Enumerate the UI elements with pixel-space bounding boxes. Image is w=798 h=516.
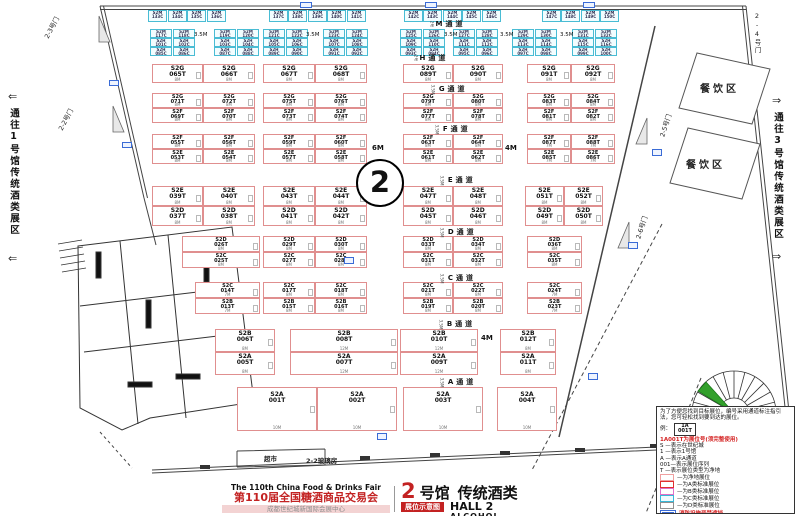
booth: S2E043T8M <box>263 186 315 206</box>
hall-type-en: ALCOHOL <box>450 512 500 516</box>
booth: S2C035T8M <box>527 252 582 268</box>
small-booth: S2M125C <box>400 29 422 38</box>
booth: S2B013T7M <box>195 298 260 314</box>
aisle-label: 3.5MD通道 <box>437 227 477 237</box>
small-booth: S2M150C <box>600 10 619 22</box>
small-booth: S2M130C <box>535 29 557 38</box>
booth-number: 009T <box>401 360 477 366</box>
fire-hydrant-icon <box>425 2 437 8</box>
small-booth: S2H100C <box>595 47 617 56</box>
booth-number: 147C <box>543 15 560 19</box>
booth-width-label: 8M <box>264 78 314 82</box>
booth: S2C032T8M <box>453 252 503 268</box>
small-booth: S2M147C <box>542 10 561 22</box>
booth-width-label: 10M <box>404 426 482 430</box>
booth-width-label: 10M <box>238 426 316 430</box>
booth: S2C028T8M <box>315 252 367 268</box>
legend-intro: 为了方便您找到目标展位，编号采用通道标注指引法，您可轻松找到要到达的展位。 <box>660 409 791 422</box>
booth-width-label: 8M <box>404 103 452 107</box>
booth: S2B012T8M <box>500 329 556 352</box>
booth: S2B023T7M <box>527 298 582 314</box>
small-booth: S2H107C <box>323 38 345 47</box>
fire-hydrant-icon <box>652 149 662 156</box>
booth-width-label: 7M <box>572 159 614 163</box>
booth-width-label: 8M <box>153 221 202 225</box>
booth: S2D041T8M <box>263 206 315 226</box>
booth: S2C027T8M <box>263 252 315 268</box>
booth: S2E052T8M <box>564 186 603 206</box>
small-booth: S2M128C <box>476 29 498 38</box>
booth: S2F082T8M <box>571 108 615 123</box>
booth-width-label: 8M <box>316 201 366 205</box>
banner-divider <box>394 486 395 512</box>
booth-number: 012T <box>501 337 555 343</box>
fire-hydrant-icon <box>344 257 354 264</box>
booth-width-label: 8M <box>264 221 314 225</box>
aisle-label: 2号H通道 <box>412 53 448 63</box>
booth: S2E058T8M <box>315 149 367 164</box>
booth: S2E053T8M <box>152 149 203 164</box>
booth: S2A009T12M <box>400 352 478 375</box>
booth-number: 089C <box>264 52 284 56</box>
booth-number: 138C <box>289 15 306 19</box>
fire-hydrant-icon <box>583 2 595 8</box>
booth: S2D038T8M <box>203 206 255 226</box>
booth-number: 008T <box>291 337 397 343</box>
small-booth: S2M138C <box>288 10 307 22</box>
booth-width-label: 8M <box>316 103 366 107</box>
booth: S2F070T8M <box>203 108 255 123</box>
booth: S2B015T8M <box>263 298 315 314</box>
swatch-label: —为A类标准展位 <box>677 482 719 488</box>
booth: S2A011T8M <box>500 352 556 375</box>
hall-title-block: 2 号馆 传统酒类 展位示意图 HALL 2 ALCOHOL <box>401 481 518 516</box>
legend-example-label: 例： <box>660 426 671 432</box>
booth: S2F069T8M <box>152 108 203 123</box>
booth: S2G072T8M <box>203 93 255 108</box>
booth-width-label: 8M <box>316 309 366 313</box>
small-booth: S2H108C <box>346 38 368 47</box>
left-corridor-arrow-icon: ⇐ <box>8 254 17 264</box>
booth-width-label: 12M <box>401 347 477 351</box>
hall-number-badge: 2 <box>356 159 404 207</box>
small-booth: S2H092C <box>346 47 368 56</box>
small-booth: S2H089C <box>263 47 285 56</box>
booth-number: 136C <box>208 15 225 19</box>
booth: S2C025T8M <box>182 252 260 268</box>
small-booth: S2M132C <box>595 29 617 38</box>
booth: S2B016T8M <box>315 298 367 314</box>
fair-title-cn: 第110届全国糖酒商品交易会 <box>222 492 390 504</box>
area-label: 2-2玻璃房 <box>306 455 337 465</box>
floor-plan-page: S2G065T8MS2G066T8MS2G067T8MS2G068T8MS2G0… <box>0 0 798 516</box>
booth-width-label: 8M <box>204 144 254 148</box>
booth-width-label: 7M <box>528 159 570 163</box>
booth-width-label: 8M <box>316 118 366 122</box>
booth-width-label: 8M <box>404 201 452 205</box>
booth-number: 141C <box>348 15 365 19</box>
small-booth: S2M131C <box>572 29 594 38</box>
booth-width-label: 7M <box>528 144 570 148</box>
booth-width-label: 8M <box>454 309 502 313</box>
aisle-name: B通道 <box>447 320 475 328</box>
booth: S2D050T8M <box>564 206 603 226</box>
booth-width-label: 8M <box>454 247 502 251</box>
legend-swatch-row: —为C类标准展位 <box>660 495 791 502</box>
small-booth: S2M122C <box>286 29 308 38</box>
small-booth: S2H085C <box>150 47 172 56</box>
gap-width-label: 3.5M <box>560 32 574 38</box>
hall-number: 2 <box>401 481 416 501</box>
plan-tag: 展位示意图 <box>401 502 444 512</box>
booth: S2D026T8M <box>182 236 260 252</box>
booth: S2G090T8M <box>453 64 503 83</box>
booth-width-label: 8M <box>264 103 314 107</box>
booth: S2D042T8M <box>315 206 367 226</box>
booth-type-swatch <box>660 502 674 509</box>
booth: S2A007T12M <box>290 352 398 375</box>
booth-width-label: 8M <box>454 144 502 148</box>
booth-width-label: 8M <box>404 263 452 267</box>
booth: S2G079T8M <box>403 93 453 108</box>
booth-width-label: 8M <box>526 221 563 225</box>
door-label: 2-2号门 <box>55 106 75 132</box>
booth: S2D036T8M <box>527 236 582 252</box>
aisle-width-label: 2号 <box>412 55 418 62</box>
booth-width-label: 8M <box>204 221 254 225</box>
booth-number: 098C <box>536 52 556 56</box>
booth-number: 003T <box>404 398 482 404</box>
booth: S2G089T8M <box>403 64 453 83</box>
legend-swatch-row: —为B类标准展位 <box>660 488 791 495</box>
booth-width-label: 8M <box>316 263 366 267</box>
booth-width-label: 8M <box>565 221 602 225</box>
booth: S2F074T8M <box>315 108 367 123</box>
booth-number: 002T <box>318 398 396 404</box>
aisle-name: C通道 <box>448 274 476 282</box>
booth-width-label: 8M <box>565 201 602 205</box>
booth: S2D029T8M <box>263 236 315 252</box>
small-booth: S2M126C <box>423 29 445 38</box>
booth-width-label: 8M <box>526 201 563 205</box>
small-booth: S2H098C <box>535 47 557 56</box>
booth: S2E062T8M <box>453 149 503 164</box>
booth: S2F059T8M <box>263 134 315 149</box>
booth-type-swatch <box>660 474 674 481</box>
booth: S2D033T8M <box>403 236 453 252</box>
booth-width-label: 8M <box>316 144 366 148</box>
booth-width-label: 8M <box>404 309 452 313</box>
booth-width-label: 8M <box>204 103 254 107</box>
booth: S2G076T8M <box>315 93 367 108</box>
booth-width-label: 12M <box>291 370 397 374</box>
small-booth: S2M119C <box>214 29 236 38</box>
booth: S2F056T8M <box>203 134 255 149</box>
booth-number: 085C <box>151 52 171 56</box>
aisle-label: 2号M通道 <box>428 19 466 29</box>
small-booth: S2M129C <box>512 29 534 38</box>
booth-number: 095C <box>454 52 474 56</box>
small-booth: S2H114C <box>535 38 557 47</box>
booth: S2F060T8M <box>315 134 367 149</box>
booth-number: 087C <box>215 52 235 56</box>
booth: S2F078T8M <box>453 108 503 123</box>
booth-width-label: 8M <box>404 247 452 251</box>
small-booth: S2H115C <box>572 38 594 47</box>
booth-number: 004T <box>498 398 556 404</box>
booth-width-label: 8M <box>153 144 202 148</box>
booth-width-label: 8M <box>216 347 274 351</box>
booth: S2G065T8M <box>152 64 203 83</box>
booth-width-label: 8M <box>204 159 254 163</box>
legend-box: 为了方便您找到目标展位，编号采用通道标注指引法，您可轻松找到要到达的展位。 例：… <box>656 406 795 514</box>
small-booth: S2M142C <box>404 10 423 22</box>
aisle-label: 3.5MG通道 <box>428 84 468 94</box>
booth-width-label: 8M <box>153 78 202 82</box>
booth-width-label: 8M <box>404 144 452 148</box>
booth: S2C021T8M <box>403 282 453 298</box>
booth: S2D045T8M <box>403 206 453 226</box>
booth: S2E061T8M <box>403 149 453 164</box>
booth-width-label: 8M <box>572 103 614 107</box>
booth-width-label: 8M <box>153 159 202 163</box>
booth-width-label: 8M <box>264 144 314 148</box>
small-booth: S2M120C <box>237 29 259 38</box>
small-booth: S2M123C <box>323 29 345 38</box>
swatch-label: —为净地展位 <box>677 475 710 481</box>
booth-type-swatch <box>660 488 674 495</box>
booth: S2F077T8M <box>403 108 453 123</box>
small-booth: S2H087C <box>214 47 236 56</box>
booth-number: 097C <box>513 52 533 56</box>
booth: S2G083T8M <box>527 93 571 108</box>
booth-width-label: 8M <box>572 78 614 82</box>
legend-swatch-row: —为净地展位 <box>660 474 791 481</box>
booth-width-label: 8M <box>153 118 202 122</box>
small-booth: S2H109C <box>400 38 422 47</box>
left-corridor-arrow-icon: ⇐ <box>8 92 17 102</box>
gap-width-label: 4M <box>505 144 517 152</box>
area-label: 餐饮区 <box>686 156 725 171</box>
legend-swatch-row: —为D类标准展位 <box>660 502 791 509</box>
booth-width-label: 8M <box>204 201 254 205</box>
fire-hydrant-icon <box>109 80 119 86</box>
booth-number: 011T <box>501 360 555 366</box>
booth: S2D046T8M <box>453 206 503 226</box>
legend-items: S —表示在世纪城1 —表示1号馆A —表示A通道001—表示展位序列T —表示… <box>660 443 791 474</box>
small-booth: S2M134C <box>168 10 187 22</box>
booth-number: 099C <box>573 52 593 56</box>
aisle-name: A通道 <box>448 378 476 386</box>
fire-hydrant-icon <box>122 142 132 148</box>
gap-width-label: 3.5M <box>194 32 208 38</box>
booth: S2F055T8M <box>152 134 203 149</box>
door-label: 2-5号门 <box>656 112 673 138</box>
booth-number: 142C <box>405 15 422 19</box>
small-booth: S2H102C <box>173 38 195 47</box>
fire-note: 消防设施严禁遮挡 <box>679 511 723 514</box>
booth-number: 005T <box>216 360 274 366</box>
gap-width-label: 6M <box>372 144 384 152</box>
small-booth: S2H096C <box>476 47 498 56</box>
booth: S2G066T8M <box>203 64 255 83</box>
hall-suffix: 号馆 <box>420 485 450 501</box>
booth-number: 135C <box>188 15 205 19</box>
small-booth: S2M121C <box>263 29 285 38</box>
booth: S2F064T8M <box>453 134 503 149</box>
legend-swatch-row: —为A类标准展位 <box>660 481 791 488</box>
booth-number: 150C <box>601 15 618 19</box>
small-booth: S2H116C <box>595 38 617 47</box>
booth-width-label: 8M <box>404 293 452 297</box>
booth-number: 148C <box>562 15 579 19</box>
booth: S2E047T8M <box>403 186 453 206</box>
booth: S2B008T12M <box>290 329 398 352</box>
booth-type-swatch <box>660 495 674 502</box>
booth-width-label: 8M <box>264 309 314 313</box>
aisle-width-label: 3.5M <box>439 227 444 237</box>
booth-width-label: 8M <box>404 78 452 82</box>
aisle-name: M通道 <box>436 20 466 28</box>
booth-width-label: 7M <box>196 309 259 313</box>
booth-width-label: 8M <box>454 159 502 163</box>
left-corridor-label: 通往1号馆传统酒类展区 <box>6 108 20 236</box>
booth-width-label: 8M <box>404 159 452 163</box>
small-booth: S2M118C <box>173 29 195 38</box>
booth-width-label: 12M <box>291 347 397 351</box>
booth: S2G071T8M <box>152 93 203 108</box>
booth-number: 100C <box>596 52 616 56</box>
small-booth: S2H112C <box>476 38 498 47</box>
booth-width-label: 8M <box>216 370 274 374</box>
booth: S2E039T8M <box>152 186 203 206</box>
booth-width-label: 8M <box>454 78 502 82</box>
small-booth: S2M146C <box>482 10 501 22</box>
booth-width-label: 8M <box>264 293 314 297</box>
aisle-width-label: 3.5M <box>439 377 444 387</box>
small-booth: S2M137C <box>269 10 288 22</box>
booth: S2C024T7M <box>527 282 582 298</box>
swatch-label: —为C类标准展位 <box>677 496 719 502</box>
right-corridor-arrow-icon: ⇒ <box>772 96 781 106</box>
booth-number: 010T <box>401 337 477 343</box>
booth-width-label: 8M <box>316 221 366 225</box>
booth-number: 137C <box>270 15 287 19</box>
booth-width-label: 8M <box>454 201 502 205</box>
booth-number: 134C <box>169 15 186 19</box>
booth: S2A003T10M <box>403 387 483 431</box>
aisle-width-label: 2号 <box>428 21 434 28</box>
booth-width-label: 8M <box>528 263 581 267</box>
small-booth: S2M117C <box>150 29 172 38</box>
booth-width-label: 8M <box>501 370 555 374</box>
booth-width-label: 8M <box>153 103 202 107</box>
booth: S2F087T7M <box>527 134 571 149</box>
booth-width-label: 8M <box>454 118 502 122</box>
fire-hydrant-icon <box>628 242 638 249</box>
booth: S2E040T8M <box>203 186 255 206</box>
booth: S2E086T7M <box>571 149 615 164</box>
booth: S2D034T8M <box>453 236 503 252</box>
booth: S2B020T8M <box>453 298 503 314</box>
booth: S2A004T10M <box>497 387 557 431</box>
booth: S2C022T8M <box>453 282 503 298</box>
aisle-width-label: 3.5M <box>438 319 443 329</box>
small-booth: S2H095C <box>453 47 475 56</box>
small-booth: S2H106C <box>286 38 308 47</box>
small-booth: S2M124C <box>346 29 368 38</box>
small-booth: S2H104C <box>237 38 259 47</box>
booth-width-label: 7M <box>572 144 614 148</box>
booth-width-label: 8M <box>454 293 502 297</box>
booth-width-label: 8M <box>183 247 259 251</box>
booth-width-label: 8M <box>153 201 202 205</box>
booth-number: 091C <box>324 52 344 56</box>
booth: S2B006T8M <box>215 329 275 352</box>
gap-width-label: 3.5M <box>500 32 514 38</box>
small-booth: S2H099C <box>572 47 594 56</box>
fair-title-block: The 110th China Food & Drinks Fair 第110届… <box>222 484 390 513</box>
aisle-label: 3.5MF通道 <box>432 124 471 134</box>
booth: S2A001T10M <box>237 387 317 431</box>
booth-width-label: 8M <box>572 118 614 122</box>
booth-width-label: 8M <box>528 118 570 122</box>
aisle-name: F通道 <box>443 125 471 133</box>
booth-number: 007T <box>291 360 397 366</box>
small-booth: S2M141C <box>347 10 366 22</box>
booth-number: 092C <box>347 52 367 56</box>
booth-width-label: 8M <box>264 247 314 251</box>
booth: S2G084T8M <box>571 93 615 108</box>
booth-type-swatch <box>660 481 674 488</box>
door-label: 2-6号门 <box>632 214 649 240</box>
booth-width-label: 8M <box>264 159 314 163</box>
booth-width-label: 8M <box>264 118 314 122</box>
booth-width-label: 8M <box>316 247 366 251</box>
fire-hydrant-icon <box>377 433 387 440</box>
booth: S2G067T8M <box>263 64 315 83</box>
small-booth: S2H111C <box>453 38 475 47</box>
booth-width-label: 8M <box>528 78 570 82</box>
booth-number: 140C <box>328 15 345 19</box>
swatch-label: —为D类标准展位 <box>677 503 720 509</box>
small-booth: S2H090C <box>286 47 308 56</box>
booth-number: 149C <box>582 15 599 19</box>
booth: S2C014T7M <box>195 282 260 298</box>
booth-width-label: 8M <box>501 347 555 351</box>
aisle-name: E通道 <box>448 176 476 184</box>
booth: S2F063T8M <box>403 134 453 149</box>
fire-equipment-icon <box>660 510 676 514</box>
aisle-label: 3.5ME通道 <box>437 175 476 185</box>
gap-width-label: 3.5M <box>306 32 320 38</box>
booth-width-label: 8M <box>316 78 366 82</box>
small-booth: S2H113C <box>512 38 534 47</box>
fire-hydrant-icon <box>300 2 312 8</box>
small-booth: S2H097C <box>512 47 534 56</box>
booth-width-label: 8M <box>264 201 314 205</box>
booth: S2D030T8M <box>315 236 367 252</box>
booth: S2G091T8M <box>527 64 571 83</box>
booth-number: 139C <box>309 15 326 19</box>
swatch-label: —为B类标准展位 <box>677 489 719 495</box>
booth-width-label: 8M <box>316 293 366 297</box>
booth-number: 145C <box>463 15 480 19</box>
booth: S2D049T8M <box>525 206 564 226</box>
venue-label: 成都世纪城新国际会展中心 <box>222 505 390 513</box>
right-corridor-label: 通往3号馆传统酒类展区 <box>770 112 784 240</box>
small-booth: S2M149C <box>581 10 600 22</box>
